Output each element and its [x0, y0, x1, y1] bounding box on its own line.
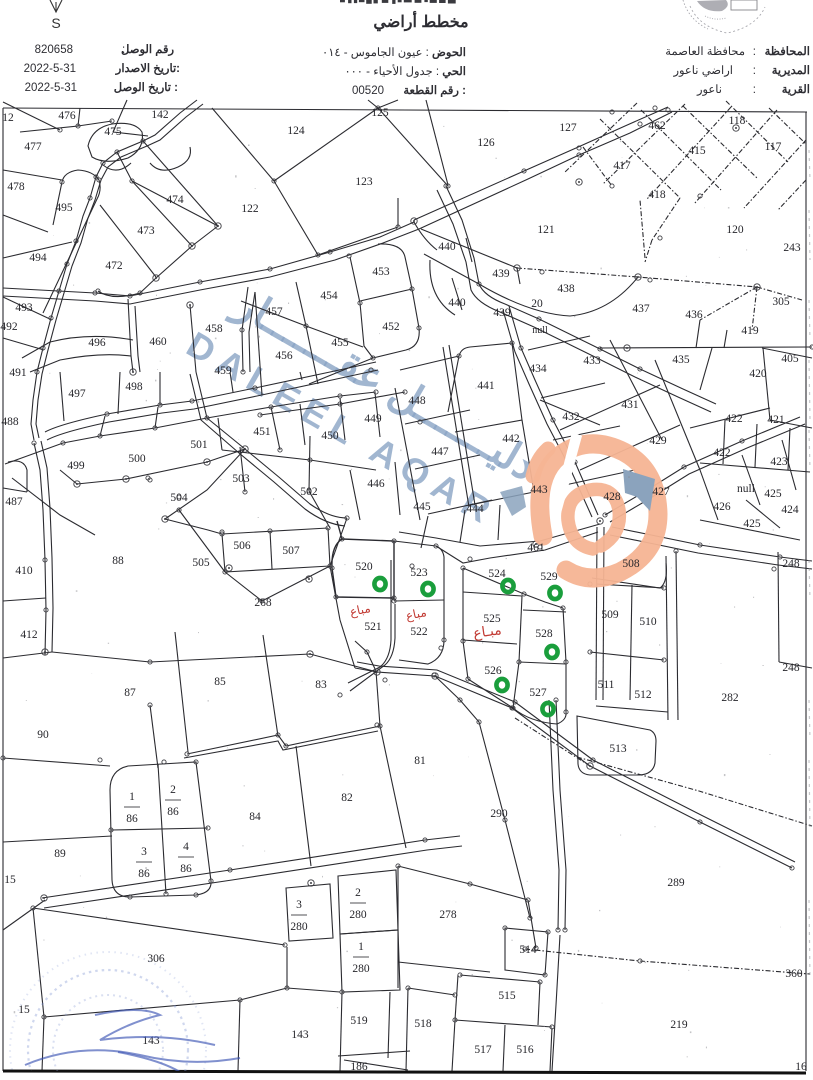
- svg-text:الحي : جدول الأحياء - ٠٠٠: الحي : جدول الأحياء - ٠٠٠: [344, 63, 466, 79]
- svg-text::: :: [122, 44, 125, 56]
- svg-text:506: 506: [233, 540, 251, 552]
- svg-text:493: 493: [15, 302, 33, 314]
- svg-text:86: 86: [138, 868, 150, 880]
- svg-text:280: 280: [352, 963, 370, 975]
- svg-text:435: 435: [672, 354, 690, 366]
- svg-text:القرية: القرية: [782, 83, 810, 97]
- svg-text:16: 16: [795, 1061, 807, 1073]
- svg-text:494: 494: [29, 252, 47, 264]
- svg-text:82: 82: [341, 792, 353, 804]
- svg-text:null: null: [737, 483, 755, 495]
- svg-text:117: 117: [765, 141, 782, 153]
- svg-text:280: 280: [349, 909, 367, 921]
- svg-text:محافظة العاصمة: محافظة العاصمة: [665, 45, 745, 58]
- svg-text:487: 487: [5, 496, 23, 508]
- svg-text:495: 495: [55, 202, 73, 214]
- svg-text:524: 524: [488, 568, 506, 580]
- svg-text:3: 3: [296, 899, 302, 911]
- svg-text:518: 518: [414, 1018, 432, 1030]
- svg-text:86: 86: [167, 806, 179, 818]
- svg-text:455: 455: [331, 337, 349, 349]
- svg-text:525: 525: [483, 613, 501, 625]
- svg-text:280: 280: [290, 921, 308, 933]
- svg-text:475: 475: [104, 126, 122, 138]
- svg-text:436: 436: [685, 309, 703, 321]
- svg-text:499: 499: [67, 460, 85, 472]
- svg-text:243: 243: [783, 242, 801, 254]
- svg-text:الحوض : عيون الجاموس - ٠١٤: الحوض : عيون الجاموس - ٠١٤: [322, 46, 466, 60]
- svg-text:86: 86: [126, 813, 138, 825]
- svg-text:405: 405: [781, 353, 799, 365]
- svg-text:رقم الوصل: رقم الوصل: [121, 43, 174, 57]
- svg-text:444: 444: [466, 503, 484, 515]
- svg-text:428: 428: [603, 491, 621, 503]
- svg-text:473: 473: [137, 225, 155, 237]
- svg-text:142: 142: [151, 109, 169, 121]
- svg-text:503: 503: [232, 473, 250, 485]
- svg-text:تاريخ الاصدار:: تاريخ الاصدار:: [115, 62, 180, 76]
- svg-text:282: 282: [721, 692, 739, 704]
- svg-text:529: 529: [540, 571, 558, 583]
- svg-text:مخطط أراضي: مخطط أراضي: [373, 10, 468, 32]
- svg-text:2: 2: [170, 784, 176, 796]
- svg-text:501: 501: [190, 439, 208, 451]
- svg-text:127: 127: [559, 122, 577, 134]
- svg-text:425: 425: [743, 518, 761, 530]
- svg-text:اراضي ناعور: اراضي ناعور: [672, 64, 733, 77]
- svg-text:417: 417: [613, 160, 631, 172]
- svg-text:122: 122: [241, 203, 259, 215]
- svg-text:488: 488: [1, 416, 19, 428]
- svg-text:497: 497: [68, 388, 86, 400]
- svg-text:1: 1: [129, 791, 135, 803]
- svg-text:84: 84: [249, 811, 261, 823]
- svg-text:مباع: مباع: [349, 601, 372, 619]
- svg-text:472: 472: [105, 260, 123, 272]
- svg-text:425: 425: [764, 488, 782, 500]
- svg-text:432: 432: [562, 411, 580, 423]
- svg-text:مباع: مباع: [405, 605, 428, 623]
- svg-text:null: null: [532, 325, 548, 336]
- svg-text:443: 443: [530, 484, 548, 496]
- svg-text:433: 433: [583, 355, 601, 367]
- svg-text:83: 83: [315, 679, 327, 691]
- svg-text:515: 515: [498, 990, 516, 1002]
- svg-text::: :: [753, 65, 756, 77]
- svg-text:248: 248: [782, 558, 800, 570]
- svg-text:500: 500: [128, 453, 146, 465]
- svg-text:437: 437: [632, 303, 650, 315]
- svg-text:290: 290: [490, 808, 508, 820]
- svg-text:118: 118: [729, 115, 746, 127]
- svg-text:820658: 820658: [35, 44, 73, 56]
- svg-text:454: 454: [320, 290, 338, 302]
- svg-text:20: 20: [531, 298, 543, 310]
- svg-text:421: 421: [767, 414, 785, 426]
- svg-text:439: 439: [493, 307, 511, 319]
- svg-text:527: 527: [529, 687, 547, 699]
- svg-text:360: 360: [785, 968, 803, 980]
- svg-text:81: 81: [414, 755, 426, 767]
- svg-text:491: 491: [9, 367, 27, 379]
- svg-text:516: 516: [516, 1044, 534, 1056]
- svg-text:3: 3: [141, 846, 147, 858]
- svg-text:المديرية: المديرية: [772, 64, 810, 78]
- svg-text:445: 445: [413, 501, 431, 513]
- svg-text:410: 410: [15, 565, 33, 577]
- svg-text:427: 427: [652, 486, 670, 498]
- svg-text:492: 492: [0, 321, 18, 333]
- svg-text:424: 424: [781, 504, 799, 516]
- svg-text:458: 458: [205, 323, 223, 335]
- svg-text:المحافظة: المحافظة: [765, 45, 810, 58]
- svg-text:رقم القطعة :: رقم القطعة :: [403, 84, 466, 98]
- svg-text:15: 15: [4, 874, 16, 886]
- svg-text:440: 440: [438, 241, 456, 253]
- svg-text:419: 419: [741, 325, 759, 337]
- svg-text:2: 2: [355, 887, 361, 899]
- svg-text:456: 456: [275, 350, 293, 362]
- svg-text:306: 306: [147, 953, 165, 965]
- svg-text:289: 289: [667, 877, 685, 889]
- svg-text:507: 507: [282, 545, 300, 557]
- svg-text:88: 88: [112, 555, 124, 567]
- svg-text:415: 415: [688, 145, 706, 157]
- svg-text:12: 12: [2, 112, 14, 124]
- svg-text:15: 15: [18, 1004, 30, 1016]
- svg-text:426: 426: [713, 501, 731, 513]
- svg-text:1: 1: [358, 941, 364, 953]
- svg-text:305: 305: [772, 296, 790, 308]
- svg-text:431: 431: [621, 399, 639, 411]
- svg-text:450: 450: [321, 430, 339, 442]
- svg-text:522: 522: [410, 626, 428, 638]
- svg-text:474: 474: [166, 194, 184, 206]
- svg-text:2022-5-31: 2022-5-31: [24, 63, 76, 75]
- svg-text:478: 478: [7, 181, 25, 193]
- svg-text:459: 459: [214, 365, 232, 377]
- svg-text:441: 441: [477, 380, 495, 392]
- svg-text:502: 502: [300, 486, 318, 498]
- svg-text:509: 509: [601, 609, 619, 621]
- svg-text:86: 86: [180, 863, 192, 875]
- svg-text:451: 451: [253, 426, 271, 438]
- svg-text:453: 453: [372, 266, 390, 278]
- svg-text:89: 89: [54, 848, 66, 860]
- svg-text:123: 123: [355, 176, 373, 188]
- svg-text:248: 248: [782, 662, 800, 674]
- svg-text:498: 498: [125, 381, 143, 393]
- svg-text:513: 513: [609, 743, 627, 755]
- svg-text:268: 268: [254, 597, 272, 609]
- svg-text:ناعور: ناعور: [696, 83, 722, 96]
- svg-text:457: 457: [265, 306, 283, 318]
- svg-text:447: 447: [431, 446, 449, 458]
- svg-text:476: 476: [58, 110, 76, 122]
- svg-text:504: 504: [170, 492, 188, 504]
- svg-text:462: 462: [648, 120, 666, 132]
- svg-text:439: 439: [492, 268, 510, 280]
- svg-text:523: 523: [410, 567, 428, 579]
- svg-text:442: 442: [502, 433, 520, 445]
- svg-text:429: 429: [649, 435, 667, 447]
- svg-text:S: S: [51, 15, 60, 31]
- svg-text:510: 510: [639, 616, 657, 628]
- svg-text:460: 460: [149, 336, 167, 348]
- svg-text:452: 452: [382, 321, 400, 333]
- svg-text:418: 418: [648, 189, 666, 201]
- svg-text:125: 125: [371, 107, 389, 119]
- svg-text:422: 422: [713, 447, 731, 459]
- svg-text:121: 121: [537, 224, 555, 236]
- svg-text:87: 87: [124, 687, 136, 699]
- svg-text:526: 526: [484, 665, 502, 677]
- svg-text:446: 446: [367, 478, 385, 490]
- svg-text:461: 461: [527, 542, 545, 554]
- svg-text:422: 422: [725, 413, 743, 425]
- svg-text:412: 412: [20, 629, 38, 641]
- svg-text:2022-5-31: 2022-5-31: [25, 82, 77, 94]
- svg-text:126: 126: [477, 137, 495, 149]
- svg-text:440: 440: [448, 297, 466, 309]
- svg-text:511: 511: [598, 679, 615, 691]
- svg-text:508: 508: [622, 558, 640, 570]
- svg-text:528: 528: [535, 628, 553, 640]
- svg-text:505: 505: [192, 557, 210, 569]
- svg-text:496: 496: [88, 337, 106, 349]
- svg-text:514: 514: [519, 944, 537, 956]
- svg-text:434: 434: [529, 363, 547, 375]
- svg-text:449: 449: [364, 413, 382, 425]
- svg-text:512: 512: [634, 689, 652, 701]
- svg-text:00520: 00520: [352, 85, 384, 97]
- svg-text:120: 120: [726, 224, 744, 236]
- svg-text:85: 85: [214, 676, 226, 688]
- svg-text:420: 420: [749, 368, 767, 380]
- svg-text:438: 438: [557, 283, 575, 295]
- svg-text:124: 124: [287, 125, 305, 137]
- svg-text:520: 520: [355, 561, 373, 573]
- svg-text:219: 219: [670, 1019, 688, 1031]
- svg-text::: :: [753, 46, 756, 58]
- svg-text::: :: [753, 84, 756, 96]
- svg-text:477: 477: [24, 141, 42, 153]
- svg-text:186: 186: [350, 1061, 368, 1073]
- svg-text:4: 4: [183, 841, 189, 853]
- svg-text:519: 519: [350, 1015, 368, 1027]
- svg-text:90: 90: [37, 729, 49, 741]
- svg-text:423: 423: [770, 456, 788, 468]
- svg-text:278: 278: [439, 909, 457, 921]
- svg-text:تاريخ الوصل :: تاريخ الوصل :: [114, 81, 178, 95]
- svg-text:521: 521: [364, 621, 382, 633]
- svg-text:143: 143: [291, 1029, 309, 1041]
- svg-text:448: 448: [408, 395, 426, 407]
- svg-text:517: 517: [474, 1044, 492, 1056]
